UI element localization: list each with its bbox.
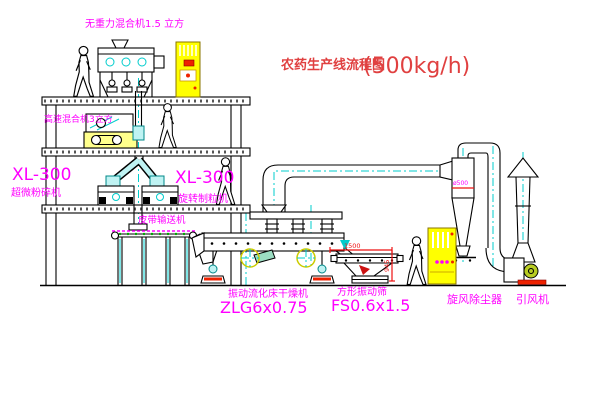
title-capacity: (500kg/h) [363,54,470,79]
label-gravity-mixer: 无重力混合机1.5 立方 [85,17,184,30]
worker-figure-1 [74,46,94,96]
label-pulverizer-model: XL-300 [12,165,71,185]
granulator-right [142,176,178,205]
pulverizer-left [98,176,134,205]
control-cabinet-lower [428,228,456,284]
worker-figure-4 [407,237,426,285]
control-cabinet-upper [176,42,200,97]
dim-sieve-length: 1500 [344,242,361,250]
fluid-bed-dryer [192,212,356,283]
cad-drawing: 农药生产线流程图 (500kg/h) 无重力混合机1.5 立方 高速混合机3立方… [0,0,600,403]
label-dryer-model: ZLG6x0.75 [220,298,308,317]
diagram-canvas: 农药生产线流程图 (500kg/h) 无重力混合机1.5 立方 高速混合机3立方… [0,0,600,403]
label-fan: 引风机 [516,292,549,306]
label-granulator-model: XL-300 [175,168,234,188]
exhaust-stack [508,158,538,262]
label-cyclone-dia: ø500 [453,180,468,187]
gravity-mixer [98,40,164,126]
spring-mount-right [310,251,334,283]
belt-conveyor [112,231,197,285]
label-pulverizer-name: 超微粉碎机 [11,186,61,199]
label-belt-conveyor: 皮带输送机 [138,214,186,226]
label-cyclone: 旋风除尘器 [447,292,502,306]
exhaust-duct [262,161,453,212]
label-granulator-name: 旋转制粒机 [178,192,228,205]
label-sieve-model: FS0.6x1.5 [331,296,410,315]
vibration-motor-symbol [241,249,315,267]
dim-sieve-height: 945 [383,260,391,272]
label-high-speed-mixer: 高速混合机3立方 [44,113,113,125]
worker-figure-2 [159,104,176,148]
